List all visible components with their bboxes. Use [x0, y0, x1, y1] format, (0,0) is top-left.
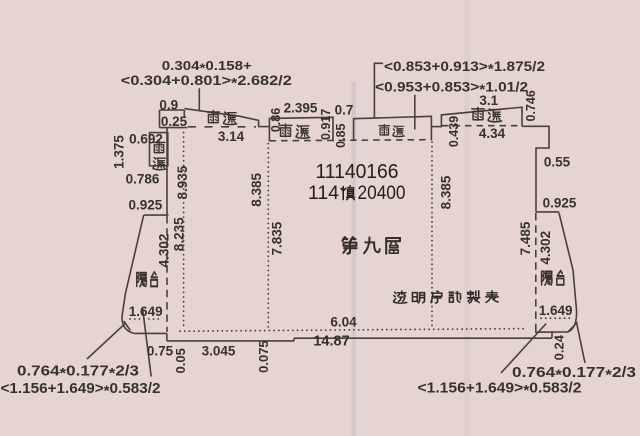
svg-text:<0.853+0.913>*1.875/2: <0.853+0.913>*1.875/2	[384, 58, 545, 77]
svg-text:0.764*0.177*2/3: 0.764*0.177*2/3	[17, 363, 139, 383]
svg-text:0.925: 0.925	[543, 196, 577, 211]
svg-text:0.25: 0.25	[161, 114, 188, 129]
svg-text:0.075: 0.075	[256, 340, 271, 373]
svg-text:8.385: 8.385	[439, 175, 454, 209]
svg-text:0.917: 0.917	[319, 109, 333, 140]
svg-text:0.05: 0.05	[173, 348, 188, 373]
svg-text:3.045: 3.045	[202, 344, 236, 359]
svg-text:1.649: 1.649	[129, 304, 163, 319]
svg-text:<1.156+1.649>*0.583/2: <1.156+1.649>*0.583/2	[418, 381, 582, 400]
svg-text:0.439: 0.439	[447, 116, 461, 147]
svg-text:2.395: 2.395	[284, 101, 318, 116]
svg-text:6.04: 6.04	[330, 315, 357, 330]
svg-text:7.835: 7.835	[270, 221, 285, 255]
svg-text:<1.156+1.649>*0.583/2: <1.156+1.649>*0.583/2	[1, 381, 161, 400]
svg-text:<0.304+0.801>*2.682/2: <0.304+0.801>*2.682/2	[121, 72, 292, 91]
svg-text:0.786: 0.786	[126, 172, 160, 187]
svg-text:<0.953+0.853>*1.01/2: <0.953+0.853>*1.01/2	[375, 79, 528, 98]
svg-text:1.375: 1.375	[112, 135, 127, 169]
svg-text:0.24: 0.24	[551, 334, 566, 360]
svg-text:1.649: 1.649	[539, 303, 573, 318]
svg-text:20400: 20400	[358, 183, 406, 204]
svg-text:11140166: 11140166	[316, 161, 399, 183]
svg-text:0.7: 0.7	[335, 103, 354, 118]
svg-text:0.925: 0.925	[129, 198, 163, 213]
svg-text:8.935: 8.935	[175, 165, 190, 199]
svg-text:8.235: 8.235	[172, 217, 187, 251]
svg-text:0.75: 0.75	[147, 344, 174, 359]
svg-text:8.385: 8.385	[249, 173, 264, 207]
svg-text:7.485: 7.485	[518, 221, 533, 255]
svg-text:4.34: 4.34	[479, 126, 506, 141]
svg-text:3.14: 3.14	[218, 129, 245, 144]
svg-text:4.302: 4.302	[157, 234, 172, 268]
svg-text:0.55: 0.55	[544, 155, 571, 170]
svg-text:0.746: 0.746	[524, 90, 538, 121]
svg-text:0.9: 0.9	[159, 97, 178, 112]
svg-text:114: 114	[308, 183, 339, 204]
svg-text:0.85: 0.85	[334, 123, 348, 147]
svg-text:14.87: 14.87	[313, 333, 349, 349]
svg-text:4.302: 4.302	[538, 231, 553, 265]
